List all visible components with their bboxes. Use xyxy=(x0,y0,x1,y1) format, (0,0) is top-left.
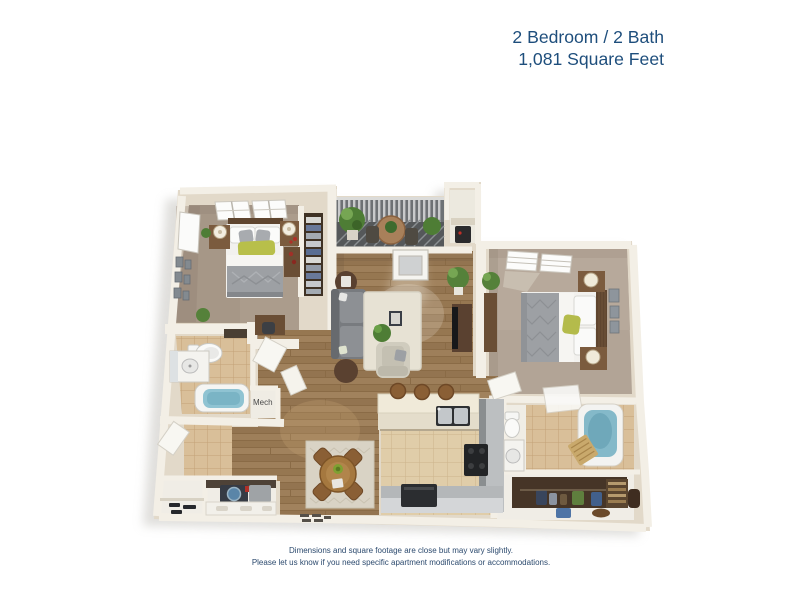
svg-text:Please let us know if you need: Please let us know if you need specific … xyxy=(252,558,550,567)
svg-text:Dimensions and square footage: Dimensions and square footage are close … xyxy=(289,546,513,555)
svg-text:2 Bedroom / 2 Bath: 2 Bedroom / 2 Bath xyxy=(512,27,664,47)
svg-text:Mech: Mech xyxy=(253,398,273,407)
svg-text:1,081 Square Feet: 1,081 Square Feet xyxy=(518,49,664,69)
